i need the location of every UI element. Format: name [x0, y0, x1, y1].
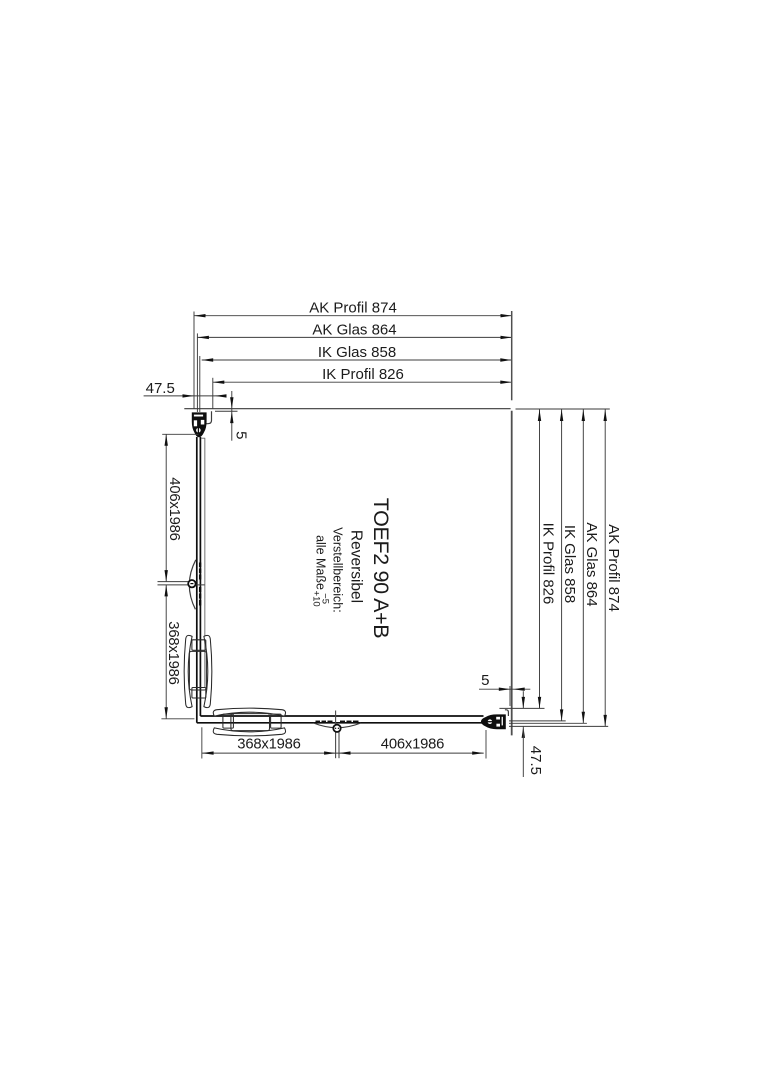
svg-text:AK Glas 864: AK Glas 864	[583, 522, 600, 606]
svg-text:47.5: 47.5	[146, 380, 175, 397]
svg-text:5: 5	[481, 672, 490, 689]
svg-text:+10: +10	[310, 591, 321, 607]
svg-text:AK Profil 874: AK Profil 874	[309, 299, 397, 316]
svg-text:IK Glas 858: IK Glas 858	[561, 525, 578, 603]
svg-text:IK Profil 826: IK Profil 826	[539, 523, 556, 605]
svg-text:IK Glas 858: IK Glas 858	[318, 344, 396, 361]
svg-text:5: 5	[232, 431, 249, 440]
svg-text:368x1986: 368x1986	[165, 621, 181, 684]
svg-text:TOEF2 90 A+B: TOEF2 90 A+B	[369, 498, 393, 639]
svg-text:368x1986: 368x1986	[237, 736, 300, 752]
svg-text:Reversibel: Reversibel	[348, 530, 365, 603]
svg-text:Verstellbereich:: Verstellbereich:	[330, 527, 344, 612]
svg-text:alle Maße: alle Maße	[314, 535, 328, 590]
svg-text:AK Profil 874: AK Profil 874	[605, 524, 622, 612]
svg-text:IK Profil 826: IK Profil 826	[322, 366, 404, 383]
svg-text:AK Glas 864: AK Glas 864	[312, 321, 396, 338]
svg-text:406x1986: 406x1986	[381, 736, 444, 752]
svg-text:47.5: 47.5	[527, 746, 544, 775]
svg-text:406x1986: 406x1986	[166, 477, 182, 540]
